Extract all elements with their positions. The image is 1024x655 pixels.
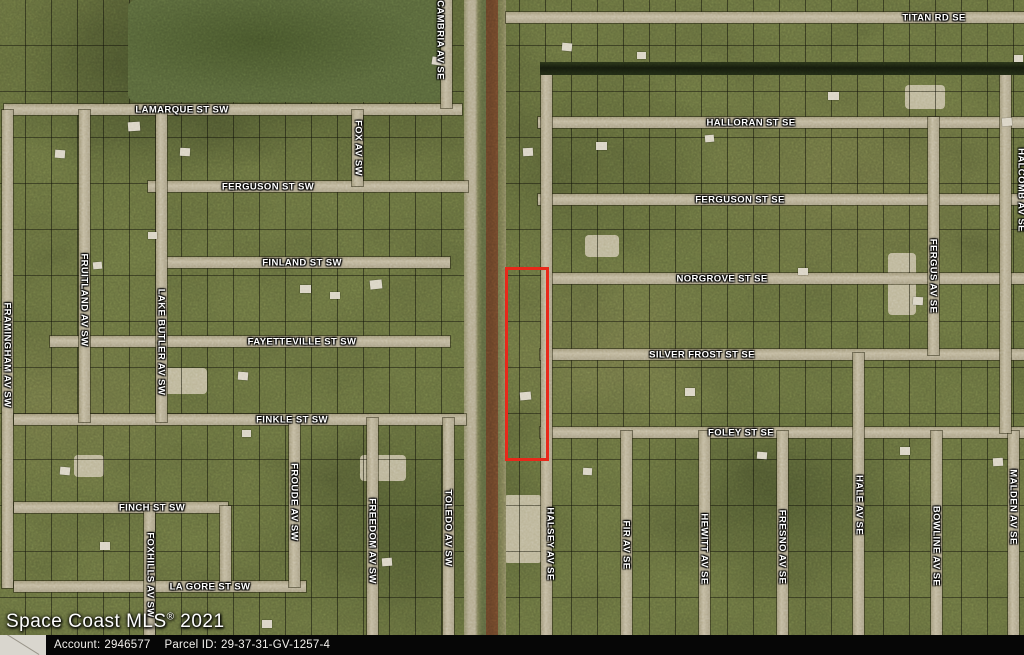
street-finch-loop-connector: [220, 506, 231, 585]
house-roof: [60, 467, 71, 476]
house-roof: [148, 232, 157, 239]
street-label-fir-av-se: FIR AV SE: [621, 521, 632, 570]
street-la-gore-st-sw: [14, 581, 306, 592]
street-label-foley-st-se: FOLEY ST SE: [708, 428, 774, 439]
listing-thumbnail: [0, 635, 46, 655]
street-norgrove-st-se: [548, 273, 1024, 284]
street-label-cambria-av-se: CAMBRIA AV SE: [435, 0, 446, 80]
main-dirt-road: [464, 0, 506, 655]
street-label-halloran-st-se: HALLORAN ST SE: [707, 118, 796, 129]
house-roof: [1014, 55, 1023, 62]
house-roof: [637, 52, 646, 59]
street-label-lamarque-st-sw: LAMARQUE ST SW: [135, 105, 228, 116]
forest-patch: [128, 0, 442, 102]
street-label-finkle-st-sw: FINKLE ST SW: [256, 415, 328, 426]
mls-watermark-text: Space Coast MLS: [6, 611, 167, 632]
street-label-fruitland-av-sw: FRUITLAND AV SW: [79, 253, 90, 346]
account-label: Account:: [54, 639, 100, 651]
house-roof: [382, 558, 393, 567]
house-roof: [262, 620, 272, 628]
street-label-finland-st-sw: FINLAND ST SW: [262, 258, 342, 269]
section-boundary-line: [486, 0, 498, 635]
house-roof: [900, 447, 910, 455]
street-label-bowline-av-se: BOWLINE AV SE: [931, 506, 942, 586]
street-label-foxhills-av-sw: FOXHILLS AV SW: [145, 532, 156, 617]
house-roof: [93, 262, 103, 270]
house-roof: [583, 468, 592, 475]
street-label-hale-av-se: HALE AV SE: [854, 475, 865, 535]
street-label-hewitt-av-se: HEWITT AV SE: [699, 513, 710, 584]
house-roof: [1002, 118, 1013, 127]
street-label-fox-av-sw: FOX AV SW: [353, 120, 364, 176]
street-label-ferguson-st-se: FERGUSON ST SE: [695, 195, 785, 206]
parcel-id-label: Parcel ID:: [165, 639, 218, 651]
house-roof: [238, 372, 249, 381]
street-label-finch-st-sw: FINCH ST SW: [119, 503, 185, 514]
house-roof: [913, 297, 923, 306]
street-label-halcomb-av-se: HALCOMB AV SE: [1016, 148, 1024, 232]
house-roof: [100, 542, 110, 550]
house-roof: [993, 458, 1003, 467]
street-label-fresno-av-se: FRESNO AV SE: [777, 510, 788, 584]
house-roof: [596, 142, 607, 150]
street-label-fayetteville-st-sw: FAYETTEVILLE ST SW: [248, 337, 357, 348]
highlighted-parcel-outline: [505, 267, 549, 461]
house-roof: [242, 430, 251, 437]
street-label-la-gore-st-sw: LA GORE ST SW: [170, 582, 251, 593]
parcel-id-value: 29-37-31-GV-1257-4: [221, 639, 330, 651]
street-label-malden-av-se: MALDEN AV SE: [1008, 469, 1019, 545]
street-label-titan-rd-se: TITAN RD SE: [902, 13, 965, 24]
account-value: 2946577: [104, 639, 150, 651]
street-label-freedom-av-sw: FREEDOM AV SW: [367, 498, 378, 583]
street-label-norgrove-st-se: NORGROVE ST SE: [676, 274, 767, 285]
footer-bar: Account: 2946577 Parcel ID: 29-37-31-GV-…: [0, 635, 1024, 655]
mls-watermark: Space Coast MLS® 2021: [6, 611, 225, 633]
registered-trademark-symbol: ®: [167, 612, 175, 623]
house-roof: [523, 148, 533, 157]
house-roof: [757, 452, 767, 460]
canal-strip: [540, 62, 1024, 75]
house-roof: [180, 148, 190, 157]
street-fergus-av-se: [928, 117, 939, 355]
house-roof: [705, 135, 715, 143]
house-roof: [798, 268, 808, 275]
street-lamarque-st-sw: [4, 104, 462, 115]
house-roof: [128, 122, 141, 132]
house-roof: [370, 279, 383, 289]
street-label-framingham-av-sw: FRAMINGHAM AV SW: [2, 302, 13, 407]
aerial-parcel-map: Space Coast MLS® 2021 Account: 2946577 P…: [0, 0, 1024, 655]
house-roof: [685, 388, 695, 396]
house-roof: [300, 285, 311, 293]
street-label-lake-butler-av-sw: LAKE BUTLER AV SW: [156, 289, 167, 396]
street-label-halsey-av-se: HALSEY AV SE: [545, 507, 556, 580]
street-label-silver-frost-st-se: SILVER FROST ST SE: [649, 350, 755, 361]
thumbnail-sketch-line: [7, 635, 40, 655]
street-label-ferguson-st-sw: FERGUSON ST SW: [222, 182, 314, 193]
street-silver-frost-st-se: [540, 349, 1024, 360]
mls-watermark-year: 2021: [180, 611, 224, 632]
account-info: Account: 2946577: [54, 639, 151, 651]
house-roof: [562, 43, 573, 52]
house-roof: [330, 292, 340, 299]
street-label-fergus-av-se: FERGUS AV SE: [928, 239, 939, 313]
street-label-froude-av-sw: FROUDE AV SW: [289, 463, 300, 541]
house-roof: [828, 92, 839, 100]
street-label-toledo-av-sw: TOLEDO AV SW: [443, 490, 454, 567]
house-roof: [55, 150, 66, 159]
parcel-id-info: Parcel ID: 29-37-31-GV-1257-4: [165, 639, 331, 651]
